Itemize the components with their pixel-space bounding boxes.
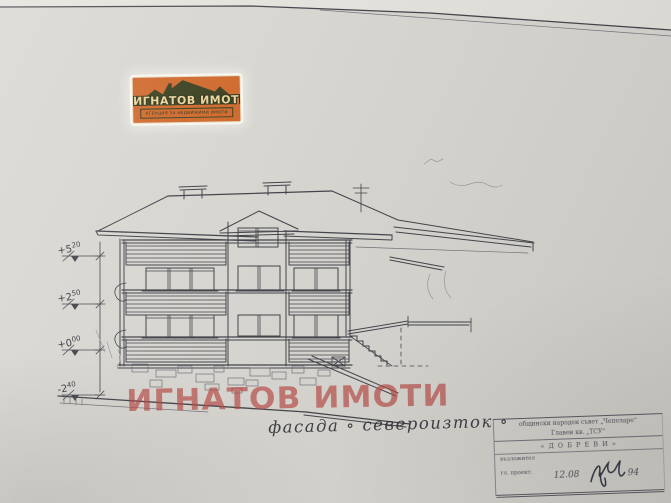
pencil-scribbles (96, 159, 502, 367)
agency-logo: ИГНАТОВ ИМОТИ АГЕНЦИЯ ЗА НЕДВИЖИМИ ИМОТИ (132, 75, 242, 124)
logo-title: ИГНАТОВ ИМОТИ (133, 93, 240, 108)
logo-subtitle: АГЕНЦИЯ ЗА НЕДВИЖИМИ ИМОТИ (140, 107, 233, 119)
title-block-year: 94 (628, 468, 640, 478)
wall-lines (118, 222, 352, 368)
elevation-mark-250: +250 (56, 288, 98, 310)
elevation-label: +520 (56, 240, 81, 257)
dimension-line (95, 242, 105, 399)
elevation-mark-520: +520 (56, 240, 98, 262)
scanned-drawing-sheet: +520 +250 +000 -240 (0, 0, 671, 503)
windows (142, 228, 340, 338)
antenna (353, 184, 369, 212)
title-block-signature-row: гл. проект. 12.08 94 (495, 459, 664, 498)
watermark-text: ИГНАТОВ ИМОТИ (126, 378, 450, 419)
chimney-left (179, 186, 207, 199)
title-block-line5: гл. проект. (501, 470, 533, 477)
elevation-label: +000 (56, 334, 81, 351)
signature-icon (587, 458, 628, 493)
elevation-label: +250 (56, 288, 81, 305)
elevation-mark-000: +000 (56, 334, 98, 356)
title-block: общински народен съвет „Чепеларе“ Главен… (493, 413, 666, 496)
paper-top-edge (0, 0, 671, 36)
balcony-railings (122, 240, 352, 362)
title-block-date: 12.08 (554, 470, 580, 481)
elevation-label: -240 (56, 380, 77, 396)
